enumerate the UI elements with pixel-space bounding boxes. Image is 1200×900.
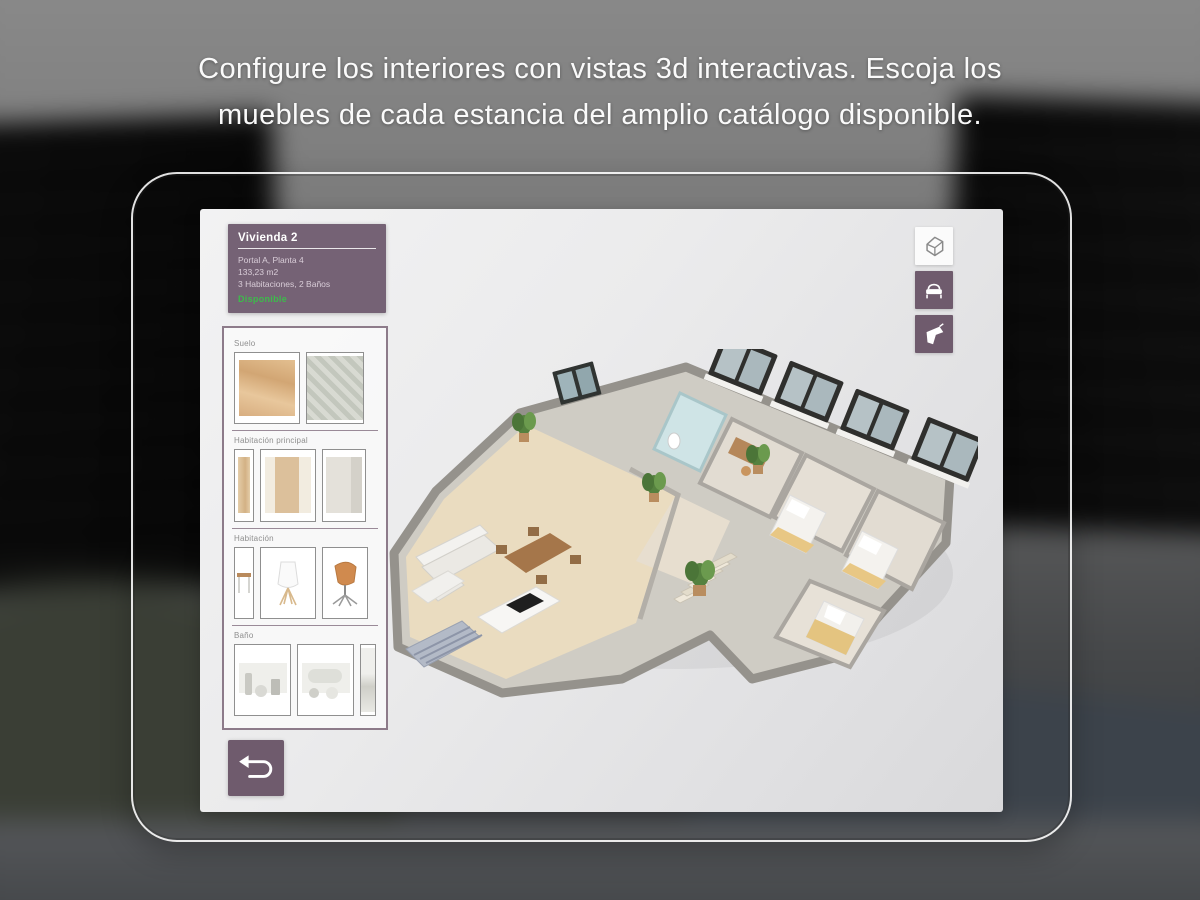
tile-texture bbox=[307, 356, 363, 421]
tablet-frame: Vivienda 2 Portal A, Planta 4 133,23 m2 … bbox=[131, 172, 1072, 842]
swatch-bath-set-3[interactable] bbox=[360, 644, 376, 716]
swatch-wardrobe-panel-narrow[interactable] bbox=[234, 449, 254, 521]
dollhouse-view-button[interactable] bbox=[915, 227, 953, 265]
bath-texture bbox=[361, 648, 375, 713]
swatch-wood-floor[interactable] bbox=[234, 352, 300, 424]
swatch-bath-set-2[interactable] bbox=[297, 644, 354, 716]
wardrobe-texture bbox=[265, 457, 311, 513]
house-3d-icon bbox=[921, 233, 947, 259]
promo-slide: Configure los interiores con vistas 3d i… bbox=[0, 0, 1200, 900]
swatch-white-chair[interactable] bbox=[260, 547, 316, 619]
bed-icon bbox=[921, 277, 947, 303]
desk-icon bbox=[237, 559, 251, 607]
property-area: 133,23 m2 bbox=[238, 266, 376, 278]
section-bathroom-label: Baño bbox=[234, 631, 376, 640]
section-master-bedroom: Habitación principal bbox=[232, 430, 378, 527]
swatch-wardrobe-panel-light[interactable] bbox=[322, 449, 366, 521]
section-bathroom: Baño bbox=[232, 625, 378, 722]
swatch-wardrobe-panel-wide[interactable] bbox=[260, 449, 316, 521]
materials-panel: Suelo Habitación principal Habita bbox=[222, 326, 388, 730]
section-bedroom: Habitación bbox=[232, 528, 378, 625]
orange-chair-icon bbox=[327, 558, 363, 608]
section-bedroom-label: Habitación bbox=[234, 534, 376, 543]
swatch-orange-chair[interactable] bbox=[322, 547, 368, 619]
section-floor-label: Suelo bbox=[234, 339, 376, 348]
property-rooms: 3 Habitaciones, 2 Baños bbox=[238, 278, 376, 290]
finishes-button[interactable] bbox=[915, 315, 953, 353]
headline-line1: Configure los interiores con vistas 3d i… bbox=[0, 46, 1200, 92]
swatch-bath-set-1[interactable] bbox=[234, 644, 291, 716]
wardrobe-texture bbox=[326, 457, 362, 513]
property-portal: Portal A, Planta 4 bbox=[238, 254, 376, 266]
swatch-desk[interactable] bbox=[234, 547, 254, 619]
card-divider bbox=[238, 248, 376, 249]
bath-set-icon bbox=[239, 653, 287, 707]
section-floor: Suelo bbox=[232, 334, 378, 430]
back-button[interactable] bbox=[228, 740, 284, 796]
view-toolbar bbox=[915, 227, 953, 353]
swatch-gray-tile[interactable] bbox=[306, 352, 364, 424]
headline-line2: muebles de cada estancia del amplio catá… bbox=[0, 92, 1200, 138]
bath-set-icon bbox=[302, 653, 350, 707]
back-arrow-icon bbox=[237, 753, 275, 783]
spray-gun-icon bbox=[921, 321, 947, 347]
furniture-button[interactable] bbox=[915, 271, 953, 309]
floorplan-3d-view[interactable] bbox=[378, 349, 978, 729]
section-master-bedroom-label: Habitación principal bbox=[234, 436, 376, 445]
white-chair-icon bbox=[268, 558, 308, 608]
wood-texture bbox=[239, 360, 294, 416]
headline: Configure los interiores con vistas 3d i… bbox=[0, 46, 1200, 138]
property-card: Vivienda 2 Portal A, Planta 4 133,23 m2 … bbox=[228, 224, 386, 313]
wardrobe-texture bbox=[238, 457, 251, 513]
app-screen: Vivienda 2 Portal A, Planta 4 133,23 m2 … bbox=[200, 209, 1003, 812]
status-badge: Disponible bbox=[238, 294, 376, 304]
property-title: Vivienda 2 bbox=[238, 232, 376, 244]
